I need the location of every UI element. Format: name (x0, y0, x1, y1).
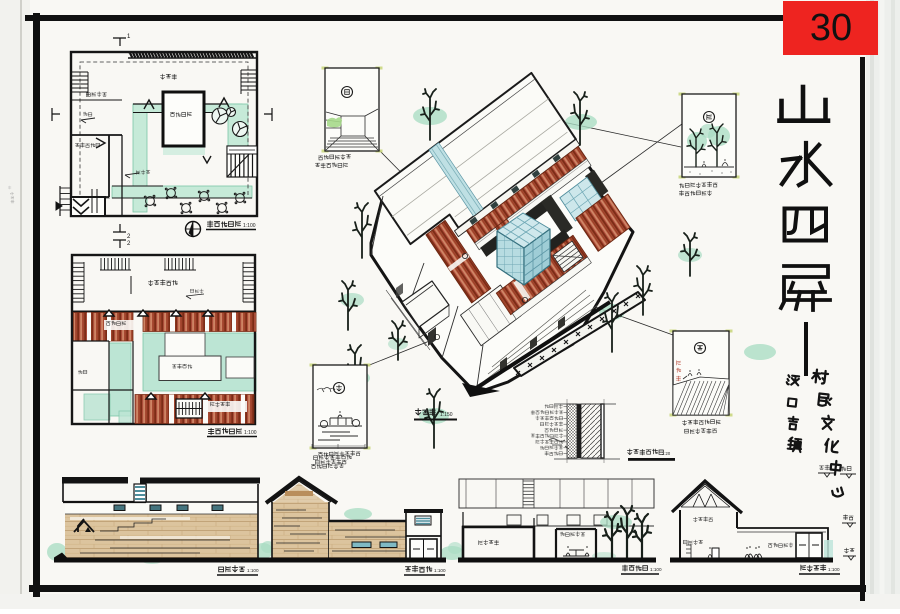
svg-text:1:150: 1:150 (440, 412, 453, 418)
svg-text:1:100: 1:100 (247, 568, 259, 573)
svg-text:1:100: 1:100 (828, 567, 840, 572)
svg-text:1:100: 1:100 (434, 568, 446, 573)
svg-text:1:20: 1:20 (662, 451, 671, 456)
svg-text:1:100: 1:100 (244, 430, 257, 436)
svg-text:1:100: 1:100 (243, 223, 256, 229)
svg-text:30: 30 (810, 7, 852, 49)
svg-text:1:100: 1:100 (650, 567, 662, 572)
